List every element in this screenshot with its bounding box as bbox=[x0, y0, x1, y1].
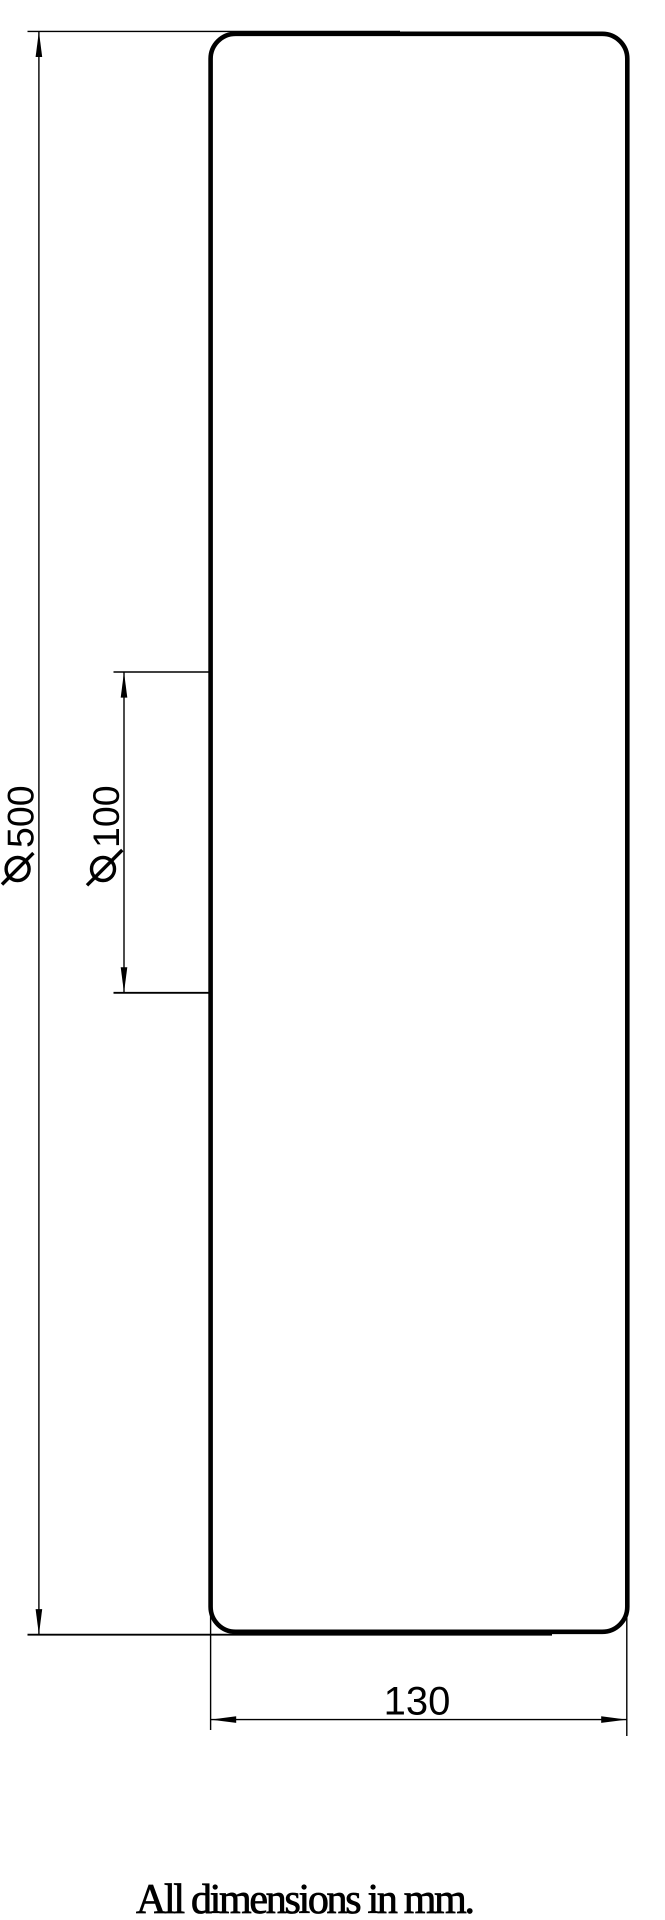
svg-text:All dimensions in mm.: All dimensions in mm. bbox=[136, 1877, 473, 1920]
svg-text:130: 130 bbox=[384, 1680, 451, 1724]
svg-text:500: 500 bbox=[0, 785, 42, 848]
svg-text:100: 100 bbox=[85, 785, 127, 848]
